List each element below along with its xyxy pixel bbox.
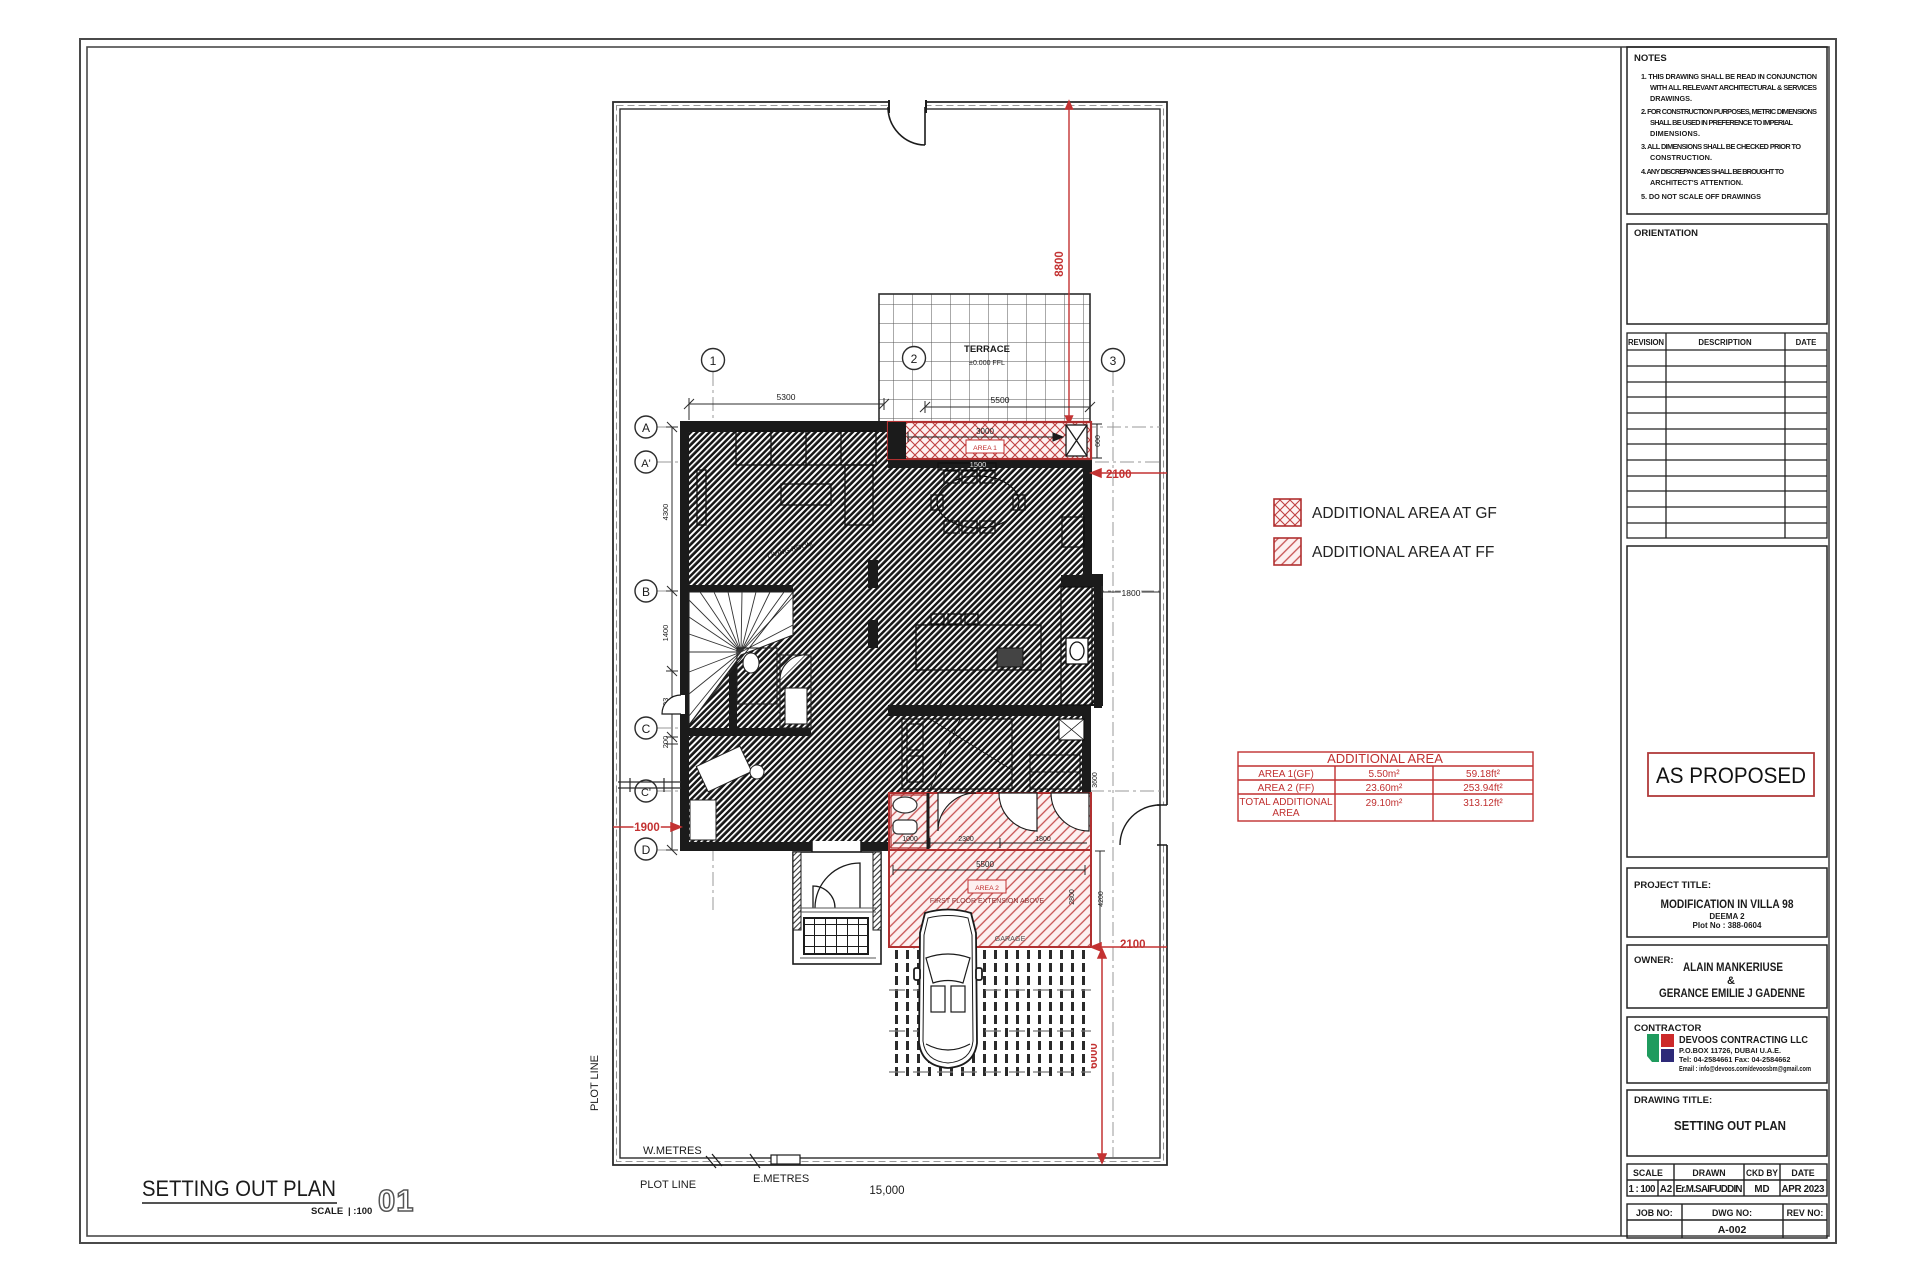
svg-text:AS PROPOSED: AS PROPOSED xyxy=(1656,763,1806,788)
svg-text:Er.M.SAIFUDDIN: Er.M.SAIFUDDIN xyxy=(1676,1184,1743,1195)
svg-text:TERRACE: TERRACE xyxy=(964,344,1010,355)
svg-text:01: 01 xyxy=(378,1183,414,1218)
svg-text:NOTES: NOTES xyxy=(1634,53,1667,64)
svg-text:2100: 2100 xyxy=(1106,469,1132,481)
svg-text:1500: 1500 xyxy=(970,460,987,469)
svg-text:A2: A2 xyxy=(1660,1184,1673,1195)
svg-text:1. THIS DRAWING SHALL BE READ: 1. THIS DRAWING SHALL BE READ IN CONJUNC… xyxy=(1641,72,1817,81)
svg-text:DRAWINGS.: DRAWINGS. xyxy=(1650,94,1692,103)
svg-text:2300: 2300 xyxy=(958,836,974,843)
svg-text:3600: 3600 xyxy=(1092,772,1099,788)
svg-text:SETTING OUT PLAN: SETTING OUT PLAN xyxy=(1674,1119,1786,1133)
svg-text:Plot No : 388-0604: Plot No : 388-0604 xyxy=(1693,921,1762,930)
svg-text:D: D xyxy=(642,843,651,857)
svg-text:3. ALL DIMENSIONS SHALL BE CHE: 3. ALL DIMENSIONS SHALL BE CHECKED PRIOR… xyxy=(1641,142,1801,151)
svg-text:DATE: DATE xyxy=(1796,338,1817,347)
svg-text:1 : 100: 1 : 100 xyxy=(1629,1184,1657,1195)
svg-text:4. ANY DISCREPANCIES SHALL BE: 4. ANY DISCREPANCIES SHALL BE BROUGHT TO xyxy=(1641,167,1784,176)
svg-text:59.18ft²: 59.18ft² xyxy=(1466,769,1501,780)
svg-text:313.12ft²: 313.12ft² xyxy=(1463,798,1503,809)
svg-text:DEEMA 2: DEEMA 2 xyxy=(1709,912,1745,921)
svg-text:ARCHITECT'S ATTENTION.: ARCHITECT'S ATTENTION. xyxy=(1650,178,1743,187)
svg-text:AREA 2: AREA 2 xyxy=(975,885,999,892)
svg-text:DIMENSIONS.: DIMENSIONS. xyxy=(1650,129,1700,138)
svg-text:PLOT LINE: PLOT LINE xyxy=(640,1179,696,1191)
svg-text:REV NO:: REV NO: xyxy=(1787,1208,1824,1218)
svg-text:APR 2023: APR 2023 xyxy=(1782,1184,1826,1195)
svg-text:23.60m²: 23.60m² xyxy=(1366,783,1403,794)
svg-text:REVISION: REVISION xyxy=(1628,338,1664,347)
svg-text:2100: 2100 xyxy=(1120,939,1146,951)
svg-text:1400: 1400 xyxy=(661,625,670,642)
svg-text:&: & xyxy=(1727,975,1735,987)
svg-text:SCALE: SCALE xyxy=(1633,1168,1663,1178)
svg-text:29.10m²: 29.10m² xyxy=(1366,798,1403,809)
svg-text:DEVOOS CONTRACTING LLC: DEVOOS CONTRACTING LLC xyxy=(1679,1034,1808,1046)
svg-text:2800: 2800 xyxy=(1069,889,1076,905)
svg-text:DRAWN: DRAWN xyxy=(1692,1168,1725,1178)
svg-text:SHALL BE USED IN PREFERENCE TO: SHALL BE USED IN PREFERENCE TO IMPERIAL xyxy=(1650,118,1794,127)
svg-text:PROJECT TITLE:: PROJECT TITLE: xyxy=(1634,880,1711,891)
svg-text:PLOT LINE: PLOT LINE xyxy=(589,1055,601,1111)
svg-text:5300: 5300 xyxy=(777,392,796,402)
svg-text:MODIFICATION IN VILLA 98: MODIFICATION IN VILLA 98 xyxy=(1661,899,1795,911)
svg-text:1000: 1000 xyxy=(902,836,918,843)
svg-text:C': C' xyxy=(641,787,651,799)
svg-text:2: 2 xyxy=(911,352,918,366)
svg-text:3000: 3000 xyxy=(976,427,994,436)
svg-text:5500: 5500 xyxy=(976,860,994,869)
svg-text:253.94ft²: 253.94ft² xyxy=(1463,783,1503,794)
svg-text:ALAIN MANKERIUSE: ALAIN MANKERIUSE xyxy=(1683,962,1783,974)
svg-text:E.METRES: E.METRES xyxy=(753,1173,809,1185)
svg-text:±0.000 FFL: ±0.000 FFL xyxy=(969,360,1005,367)
svg-text:JOB NO:: JOB NO: xyxy=(1636,1208,1673,1218)
svg-text:5. DO NOT SCALE OFF DRAWINGS: 5. DO NOT SCALE OFF DRAWINGS xyxy=(1641,192,1761,201)
svg-text:AREA 2 (FF): AREA 2 (FF) xyxy=(1258,783,1315,794)
svg-text:8800: 8800 xyxy=(1054,251,1066,277)
svg-text:DRAWING TITLE:: DRAWING TITLE: xyxy=(1634,1095,1712,1106)
svg-text:WITH ALL RELEVANT ARCHITECTURA: WITH ALL RELEVANT ARCHITECTURAL & SERVIC… xyxy=(1650,83,1817,92)
svg-text:200: 200 xyxy=(661,736,670,749)
svg-text:1900: 1900 xyxy=(634,822,660,834)
svg-text:Email : info@devoos.com/devoos: Email : info@devoos.com/devoosbm@gmail.c… xyxy=(1679,1064,1811,1073)
svg-text:3: 3 xyxy=(1110,354,1117,368)
svg-text:A: A xyxy=(642,421,650,435)
svg-text:ADDITIONAL AREA AT GF: ADDITIONAL AREA AT GF xyxy=(1312,505,1497,522)
svg-text:4300: 4300 xyxy=(661,504,670,521)
svg-text:C: C xyxy=(642,722,651,736)
svg-text:AREA: AREA xyxy=(1272,808,1300,819)
svg-text:5.50m²: 5.50m² xyxy=(1368,769,1400,780)
svg-text:DATE: DATE xyxy=(1791,1168,1814,1178)
svg-text:15,000: 15,000 xyxy=(869,1185,904,1197)
svg-text:OWNER:: OWNER: xyxy=(1634,955,1674,966)
svg-text:4200: 4200 xyxy=(1098,891,1105,907)
svg-text:| :100: | :100 xyxy=(348,1206,372,1217)
svg-text:SCALE: SCALE xyxy=(311,1206,343,1217)
svg-text:ADDITIONAL AREA: ADDITIONAL AREA xyxy=(1327,751,1443,766)
svg-text:AREA 1(GF): AREA 1(GF) xyxy=(1258,769,1314,780)
svg-text:W.METRES: W.METRES xyxy=(643,1145,702,1157)
svg-text:1800: 1800 xyxy=(1122,588,1141,598)
svg-text:SETTING OUT PLAN: SETTING OUT PLAN xyxy=(142,1176,336,1201)
svg-text:P.O.BOX 11726, DUBAI U.A.E.: P.O.BOX 11726, DUBAI U.A.E. xyxy=(1679,1046,1781,1055)
svg-text:A-002: A-002 xyxy=(1718,1224,1747,1236)
svg-text:Tel: 04-2584661 Fax: 04-25846: Tel: 04-2584661 Fax: 04-2584662 xyxy=(1679,1055,1790,1064)
svg-text:CONSTRUCTION.: CONSTRUCTION. xyxy=(1650,153,1712,162)
svg-text:TOTAL ADDITIONAL: TOTAL ADDITIONAL xyxy=(1239,797,1333,808)
svg-text:FIRST FLOOR EXTENSION ABOVE: FIRST FLOOR EXTENSION ABOVE xyxy=(930,898,1045,905)
svg-text:DESCRIPTION: DESCRIPTION xyxy=(1698,338,1752,347)
svg-text:5500: 5500 xyxy=(991,395,1010,405)
svg-text:1800: 1800 xyxy=(1035,836,1051,843)
svg-text:CKD BY: CKD BY xyxy=(1746,1168,1778,1178)
svg-text:AREA 1: AREA 1 xyxy=(973,445,997,452)
svg-text:MD: MD xyxy=(1754,1184,1769,1195)
svg-text:ORIENTATION: ORIENTATION xyxy=(1634,228,1698,239)
svg-text:600: 600 xyxy=(1095,435,1102,447)
svg-text:GERANCE EMILIE J GADENNE: GERANCE EMILIE J GADENNE xyxy=(1659,988,1805,1000)
svg-text:1: 1 xyxy=(710,354,717,368)
svg-text:CONTRACTOR: CONTRACTOR xyxy=(1634,1023,1702,1034)
svg-text:GARAGE: GARAGE xyxy=(995,934,1026,943)
svg-text:A': A' xyxy=(641,458,650,470)
svg-text:DWG NO:: DWG NO: xyxy=(1712,1208,1752,1218)
svg-text:2. FOR CONSTRUCTION PURPOSES,: 2. FOR CONSTRUCTION PURPOSES, METRIC DIM… xyxy=(1641,107,1817,116)
svg-text:ADDITIONAL AREA AT FF: ADDITIONAL AREA AT FF xyxy=(1312,544,1494,561)
svg-text:B: B xyxy=(642,585,650,599)
